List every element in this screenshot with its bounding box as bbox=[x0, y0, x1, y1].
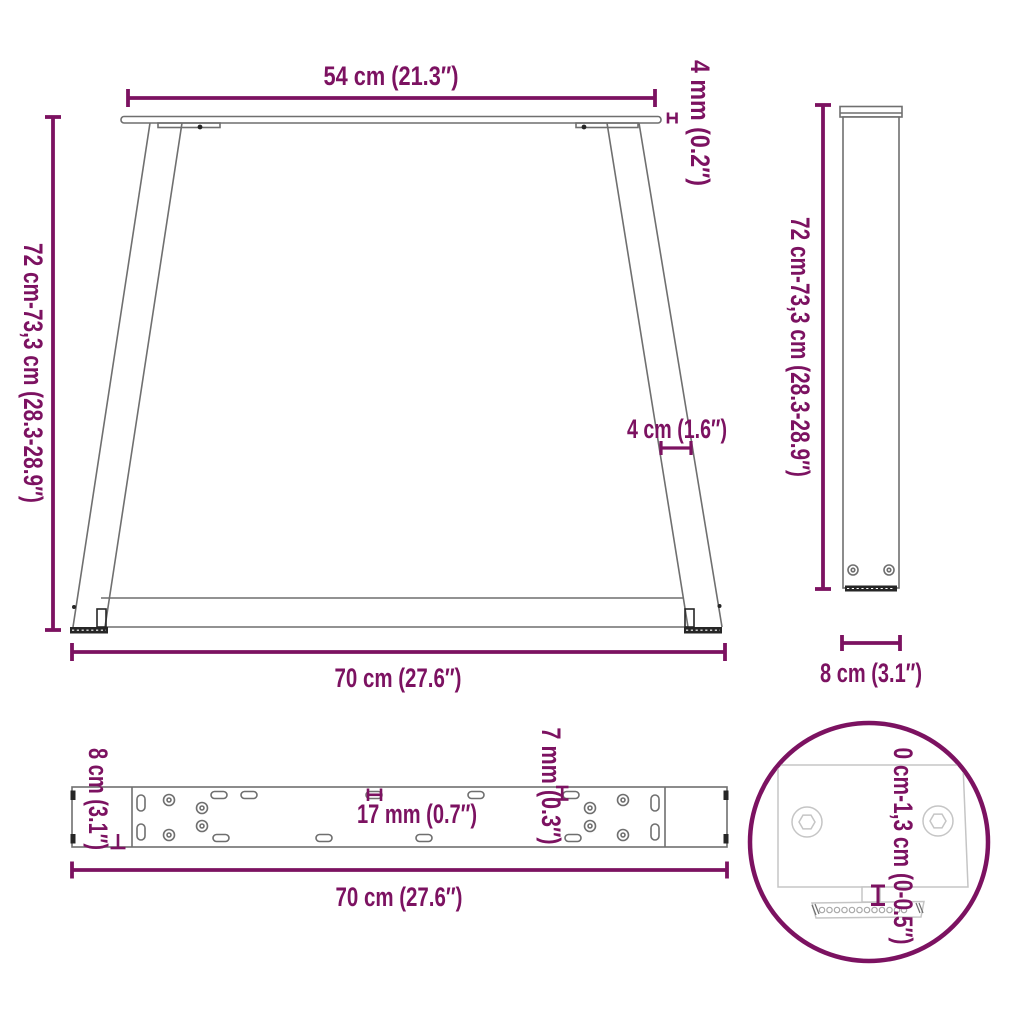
front-left-leg bbox=[73, 123, 182, 627]
dim-side-height bbox=[815, 105, 831, 589]
label-front-top-width: 54 cm (21.3″) bbox=[324, 61, 459, 91]
front-crossbar bbox=[101, 598, 688, 627]
label-side-height: 72 cm-73,3 cm (28.3-28.9″) bbox=[785, 217, 815, 477]
label-front-leg-width: 4 cm (1.6″) bbox=[627, 414, 727, 444]
foot-detail-view: 0 cm-1,3 cm (0-0.5″) bbox=[750, 723, 988, 961]
dim-front-top-width bbox=[128, 89, 655, 107]
label-plate-depth: 8 cm (3.1″) bbox=[83, 748, 113, 850]
detail-leg-outline bbox=[778, 765, 968, 887]
dimension-diagram: 54 cm (21.3″) 72 cm-73,3 cm (28.3-28.9″) bbox=[0, 0, 1024, 1024]
side-top-cap bbox=[840, 107, 902, 118]
detail-circle bbox=[750, 723, 988, 961]
dim-front-bottom-width bbox=[72, 643, 725, 661]
detail-drawing bbox=[778, 765, 968, 918]
label-front-bottom-width: 70 cm (27.6″) bbox=[335, 663, 462, 693]
front-foot-right bbox=[684, 627, 722, 634]
side-foot bbox=[845, 586, 897, 592]
front-right-leg bbox=[607, 123, 722, 627]
label-side-depth: 8 cm (3.1″) bbox=[820, 658, 922, 688]
plate-top-view: 8 cm (3.1″) 17 mm (0.7″) 7 mm (0.3″) 70 … bbox=[71, 728, 729, 913]
detail-screws bbox=[792, 806, 953, 837]
label-plate-slot-width: 17 mm (0.7″) bbox=[357, 799, 477, 829]
label-front-plate-thickness: 4 mm (0.2″) bbox=[685, 60, 715, 186]
dim-side-depth bbox=[842, 635, 900, 651]
thickness-tick-icon bbox=[668, 113, 677, 124]
front-foot-left bbox=[70, 627, 108, 634]
front-top-plate bbox=[121, 117, 661, 124]
label-front-height: 72 cm-73,3 cm (28.3-28.9″) bbox=[18, 243, 48, 503]
front-plate-brackets bbox=[158, 123, 638, 129]
front-crossbar-joints bbox=[72, 604, 722, 627]
side-view: 72 cm-73,3 cm (28.3-28.9″) 8 cm (3.1″) bbox=[785, 105, 922, 688]
diagram-svg: 54 cm (21.3″) 72 cm-73,3 cm (28.3-28.9″) bbox=[0, 0, 1024, 1024]
side-leg-body bbox=[843, 117, 899, 588]
front-view: 54 cm (21.3″) 72 cm-73,3 cm (28.3-28.9″) bbox=[18, 60, 727, 693]
label-plate-slot-height: 7 mm (0.3″) bbox=[536, 728, 566, 845]
dim-plate-length bbox=[72, 862, 727, 879]
label-foot-adjust-range: 0 cm-1,3 cm (0-0.5″) bbox=[888, 748, 918, 945]
label-plate-length: 70 cm (27.6″) bbox=[336, 882, 463, 912]
